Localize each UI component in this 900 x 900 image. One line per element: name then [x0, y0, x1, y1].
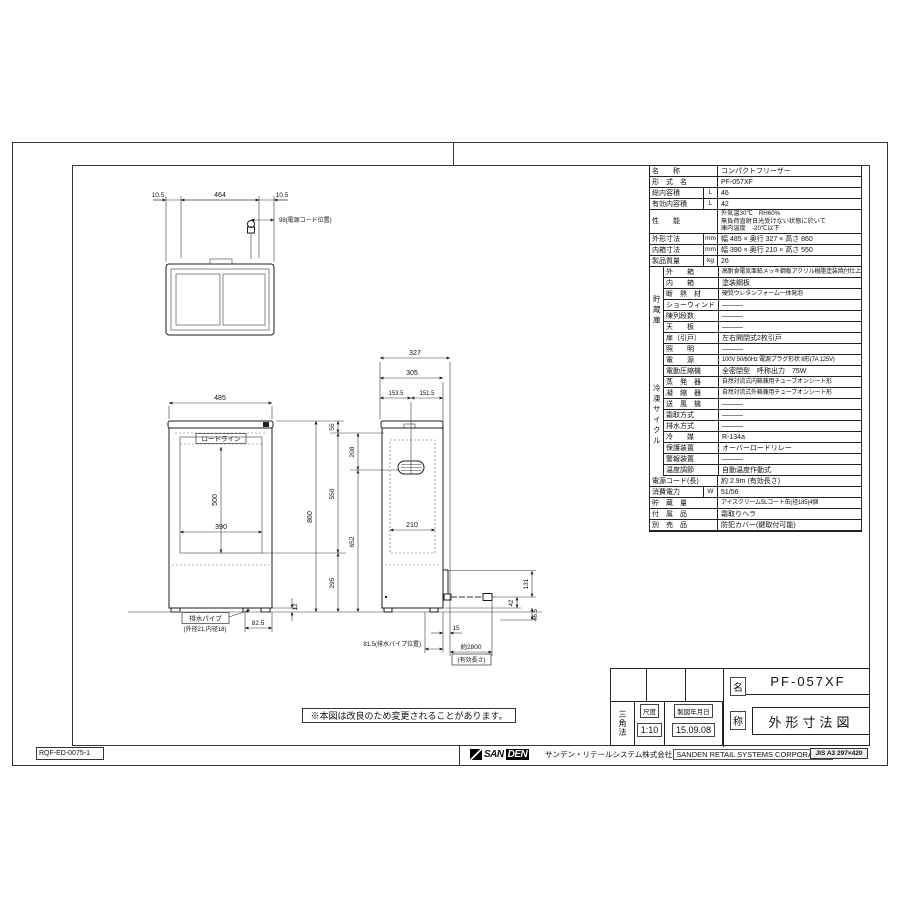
- row-model: 形 式 名 PF-057XF: [650, 177, 861, 188]
- revision-cell-divider: [685, 669, 686, 701]
- row-condenser: 凝 縮 器 自然対流式外箱兼用チューブオンシート形: [664, 388, 861, 399]
- dim-cord-length: 約2800: [461, 642, 482, 651]
- row-label: 断 熱 材: [664, 289, 718, 299]
- row-value: 自然対流式内箱兼用チューブオンシート形: [719, 377, 861, 387]
- drawing-sheet-page: { "sheet": { "doc_number": "RQF-ED-0075-…: [0, 0, 900, 900]
- row-label: ショーウィンド: [664, 300, 718, 310]
- row-label: 排水方式: [664, 421, 718, 431]
- top-view: 10.5 464 10.5 98(電源コード位置): [152, 192, 332, 335]
- date-cell: 製図年月日 15.09.08: [665, 701, 723, 745]
- name-char-1: 名: [730, 677, 746, 696]
- label-cord-position: 98(電源コード位置): [279, 216, 332, 224]
- row-label: 有効内容積: [650, 199, 703, 209]
- row-label: 消費電力: [650, 487, 703, 497]
- dim-lid-height: 55: [329, 423, 336, 431]
- dim-cord-floor: 46.5: [533, 609, 539, 621]
- row-label: 電 源: [664, 355, 718, 365]
- dim-depth: 327: [409, 350, 421, 357]
- row-value: ―――: [719, 322, 861, 332]
- dim-cord-height: 131: [523, 578, 530, 589]
- label-cord-length-note: (有効長さ): [458, 656, 486, 664]
- date-label: 製図年月日: [674, 704, 713, 718]
- dim-evap-center: 208: [349, 446, 356, 457]
- row-value: 100V 50/60Hz 電源プラグ形状 Ⅱ形(7A 125V): [719, 355, 861, 365]
- row-value: ―――: [719, 399, 861, 409]
- dim-inner-height: 500: [212, 494, 219, 506]
- row-door: 扉（引戸） 左右開閉式2枚引戸: [664, 333, 861, 344]
- row-value: ―――: [719, 421, 861, 431]
- row-value: オーバーロードリレー: [719, 443, 861, 453]
- row-value: 塗装鋼板: [719, 278, 861, 288]
- row-consumption: 消費電力W 51/56: [650, 487, 861, 498]
- row-value: ―――: [719, 344, 861, 354]
- spec-table: 名 称 コンパクトフリーザー 形 式 名 PF-057XF 総内容積L 46 有…: [649, 165, 862, 532]
- row-unit: L: [703, 188, 717, 198]
- model-underline: [746, 694, 870, 695]
- row-label: 蒸 発 器: [664, 377, 718, 387]
- dim-top-margin-right: 10.5: [276, 192, 289, 199]
- row-value: 幅 390 × 奥行 210 × 高さ 550: [718, 245, 861, 255]
- dim-lid-depth: 305: [406, 370, 418, 377]
- row-value: 硬質ウレタンフォーム一体発泡: [719, 289, 861, 299]
- row-label: 外形寸法: [650, 234, 703, 244]
- dim-front-height: 860: [307, 511, 314, 523]
- logo-text-san: SAN: [484, 749, 504, 760]
- label-drain-pipe: 排水パイプ: [189, 614, 222, 623]
- scale-value: 1:10: [637, 723, 663, 737]
- row-capacity: 貯 蔵 量 アイスクリーム5Lコート缶(径185)4個: [650, 498, 861, 509]
- logo-text-den: DEN: [506, 749, 530, 760]
- row-label: 内 箱: [664, 278, 718, 288]
- row-power: 電 源 100V 50/60Hz 電源プラグ形状 Ⅱ形(7A 125V): [664, 355, 861, 366]
- row-value: アイスクリーム5Lコート缶(径185)4個: [718, 498, 861, 508]
- row-value: 霜取りヘラ: [718, 509, 861, 519]
- row-value: 防犯カバー(鍵取付可能): [718, 520, 861, 530]
- row-value: 外気温30℃ RH60% 無負荷直射日光受けない状態に於いて 庫内温度 -20℃…: [718, 210, 861, 233]
- row-unit: mm: [703, 234, 717, 244]
- row-value: 左右開閉式2枚引戸: [719, 333, 861, 343]
- performance-line3: 庫内温度 -20℃以下: [721, 225, 779, 233]
- company-name: サンデン・リテールシステム株式会社 SANDEN RETAIL SYSTEMS …: [545, 748, 833, 761]
- row-label: 製品質量: [650, 256, 703, 266]
- row-label: 総内容積: [650, 188, 703, 198]
- dim-foot-height: 12: [292, 603, 299, 611]
- row-label: 付 属 品: [650, 509, 717, 519]
- row-value: 42: [718, 199, 861, 209]
- row-label: 凝 縮 器: [664, 388, 718, 398]
- dim-front-width: 485: [214, 395, 226, 402]
- cycle-group-label: 冷凍サイクル: [650, 355, 664, 476]
- document-number: RQF-ED-0075-1: [36, 747, 104, 760]
- row-unit: kg: [703, 256, 717, 266]
- row-compressor: 電動圧縮機 全密閉型 呼称出力 75W: [664, 366, 861, 377]
- row-label: 内箱寸法: [650, 245, 703, 255]
- label-drain-position: 81.5(排水パイプ位置): [363, 640, 421, 648]
- row-top-plate: 天 板 ―――: [664, 322, 861, 333]
- storage-group-label: 貯蔵庫: [650, 267, 664, 355]
- row-label: 扉（引戸）: [664, 333, 718, 343]
- row-label: 保護装置: [664, 443, 718, 453]
- row-value: ―――: [719, 410, 861, 420]
- company-name-jp: サンデン・リテールシステム株式会社: [545, 749, 672, 760]
- row-accessories: 付 属 品 霜取りヘラ: [650, 509, 861, 520]
- dim-cord-drop: 42: [509, 599, 515, 606]
- dim-top-margin-left: 10.5: [152, 192, 165, 199]
- row-lighting: 照 明 ―――: [664, 344, 861, 355]
- row-refrigerant: 冷 媒 R-134a: [664, 432, 861, 443]
- storage-section: 貯蔵庫 外 箱 高耐食電気亜鉛メッキ鋼板アクリル樹脂塗装焼付仕上げ 内 箱 塗装…: [650, 267, 861, 355]
- dim-inner-depth: 210: [406, 522, 418, 529]
- row-label: 照 明: [664, 344, 718, 354]
- row-label: 形 式 名: [650, 177, 717, 187]
- row-name: 名 称 コンパクトフリーザー: [650, 166, 861, 177]
- row-thermostat: 温度調節 自動温度作動式: [664, 465, 861, 476]
- row-external-dims: 外形寸法mm 幅 485 × 奥行 327 × 高さ 860: [650, 234, 861, 245]
- sanden-logo-icon: [470, 749, 482, 760]
- row-value: ―――: [719, 300, 861, 310]
- scale-cell: 尺度 1:10: [635, 701, 665, 745]
- name-char-2: 称: [730, 711, 746, 730]
- row-effective-volume: 有効内容積L 42: [650, 199, 861, 210]
- row-insulation: 断 熱 材 硬質ウレタンフォーム一体発泡: [664, 289, 861, 300]
- scale-label: 尺度: [640, 704, 659, 718]
- row-label: 天 板: [664, 322, 718, 332]
- name-cell: 名 称 PF-057XF 外形寸法図: [723, 669, 871, 747]
- row-label: 性 能: [650, 210, 717, 233]
- row-label: 電動圧縮機: [664, 366, 718, 376]
- row-value: 約 2.9m (有効長さ): [718, 476, 861, 486]
- row-defrost: 霜取方式 ―――: [664, 410, 861, 421]
- row-value: 46: [718, 188, 861, 198]
- row-label: 送 風 機: [664, 399, 718, 409]
- date-value: 15.09.08: [672, 723, 715, 737]
- row-inner-case: 内 箱 塗装鋼板: [664, 278, 861, 289]
- row-unit: L: [703, 199, 717, 209]
- row-protection: 保護装置 オーバーロードリレー: [664, 443, 861, 454]
- row-unit: W: [703, 487, 717, 497]
- row-label: 警報装置: [664, 454, 718, 464]
- row-value: 自動温度作動式: [719, 465, 861, 475]
- sanden-logo: SANDEN: [470, 748, 529, 760]
- row-internal-dims: 内箱寸法mm 幅 390 × 奥行 210 × 高さ 550: [650, 245, 861, 256]
- row-value: コンパクトフリーザー: [718, 166, 861, 176]
- dim-top-lid-width: 464: [214, 192, 226, 199]
- title-block: 三角法 尺度 1:10 製図年月日 15.09.08 名 称 PF-057XF …: [610, 668, 870, 746]
- sheet-format-label: JIS A3 297×420: [810, 748, 868, 759]
- row-unit: mm: [703, 245, 717, 255]
- row-label: 冷 媒: [664, 432, 718, 442]
- row-evaporator: 蒸 発 器 自然対流式内箱兼用チューブオンシート形: [664, 377, 861, 388]
- row-label: 別 売 品: [650, 520, 717, 530]
- row-gross-volume: 総内容積L 46: [650, 188, 861, 199]
- row-drainage: 排水方式 ―――: [664, 421, 861, 432]
- dim-evap-to-floor: 652: [349, 536, 356, 547]
- row-alarm: 警報装置 ―――: [664, 454, 861, 465]
- dim-drain-offset: 82.5: [252, 620, 265, 627]
- revision-note: ※本図は改良のため変更されることがあります。: [302, 708, 516, 723]
- row-options: 別 売 品 防犯カバー(鍵取付可能): [650, 520, 861, 531]
- row-cord: 電源コード(長) 約 2.9m (有効長さ): [650, 476, 861, 487]
- row-performance: 性 能 外気温30℃ RH60% 無負荷直射日光受けない状態に於いて 庫内温度 …: [650, 210, 861, 234]
- row-value: R-134a: [719, 432, 861, 442]
- row-value: PF-057XF: [718, 177, 861, 187]
- row-label: 外 箱: [664, 267, 718, 277]
- row-value: ―――: [719, 454, 861, 464]
- row-label: 温度調節: [664, 465, 718, 475]
- dim-inner-height-side: 550: [329, 488, 336, 499]
- revision-cell-divider: [646, 669, 647, 701]
- row-fan: 送 風 機 ―――: [664, 399, 861, 410]
- row-value: 全密閉型 呼称出力 75W: [719, 366, 861, 376]
- row-outer-case: 外 箱 高耐食電気亜鉛メッキ鋼板アクリル樹脂塗装焼付仕上げ: [664, 267, 861, 278]
- side-view: 327 305 153.5 151.5 210 131 42 46.5 15 8…: [363, 350, 539, 665]
- height-dimension-chains: 55 550 295 208 652: [128, 421, 542, 612]
- label-drain-pipe-size: (外径21,内径18): [183, 625, 226, 633]
- row-label: 貯 蔵 量: [650, 498, 717, 508]
- row-label: 霜取方式: [664, 410, 718, 420]
- model-number: PF-057XF: [749, 674, 867, 689]
- front-view: ロードライン 485 390 500 860 82.5 12 排水パイプ (: [168, 395, 344, 633]
- row-label: 電源コード(長): [650, 476, 717, 486]
- dim-cord-offset: 15: [452, 625, 460, 632]
- dim-center-rear: 151.5: [419, 391, 435, 397]
- cycle-section: 冷凍サイクル 電 源 100V 50/60Hz 電源プラグ形状 Ⅱ形(7A 12…: [650, 355, 861, 476]
- row-value: 26: [718, 256, 861, 266]
- row-value: 幅 485 × 奥行 327 × 高さ 860: [718, 234, 861, 244]
- row-value: 自然対流式外箱兼用チューブオンシート形: [719, 388, 861, 398]
- row-label: 陳列段数: [664, 311, 718, 321]
- row-value: ―――: [719, 311, 861, 321]
- dim-center-front: 153.5: [388, 391, 404, 397]
- row-value: 51/56: [718, 487, 861, 497]
- projection-method: 三角法: [611, 701, 635, 745]
- performance-line1: 外気温30℃ RH60%: [721, 210, 780, 218]
- drawing-title: 外形寸法図: [752, 707, 870, 735]
- row-label: 名 称: [650, 166, 717, 176]
- row-weight: 製品質量kg 26: [650, 256, 861, 267]
- row-show-window: ショーウィンド ―――: [664, 300, 861, 311]
- label-load-line: ロードライン: [202, 435, 241, 443]
- dim-lower-height: 295: [329, 577, 336, 588]
- row-shelves: 陳列段数 ―――: [664, 311, 861, 322]
- row-value: 高耐食電気亜鉛メッキ鋼板アクリル樹脂塗装焼付仕上げ: [719, 267, 861, 277]
